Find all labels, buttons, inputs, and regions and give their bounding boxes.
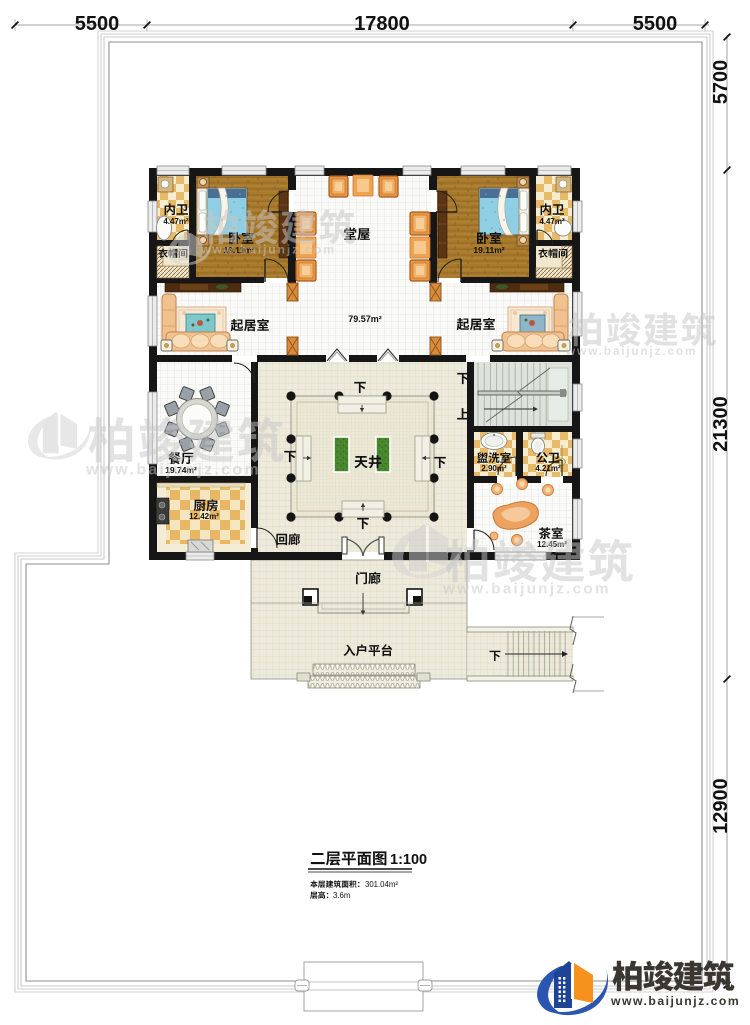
svg-text:19.11m²: 19.11m²	[473, 245, 504, 255]
svg-text:5700: 5700	[710, 60, 732, 105]
svg-text:4.21m²: 4.21m²	[535, 464, 561, 473]
svg-text:www.baijunjz.com: www.baijunjz.com	[565, 344, 697, 358]
svg-text:12.42m²: 12.42m²	[189, 512, 219, 521]
svg-text:5500: 5500	[633, 13, 678, 35]
svg-text:www.baijunjz.com: www.baijunjz.com	[610, 994, 740, 1008]
svg-text:www.baijunjz.com: www.baijunjz.com	[85, 461, 261, 478]
svg-text:17800: 17800	[354, 13, 410, 35]
svg-text:3.6m: 3.6m	[333, 891, 350, 900]
svg-text:4.47m²: 4.47m²	[163, 217, 189, 226]
svg-text:21300: 21300	[710, 396, 732, 452]
svg-text:301.04m²: 301.04m²	[365, 880, 398, 889]
svg-text:2.90m²: 2.90m²	[481, 464, 507, 473]
svg-text:www.baijunjz.com: www.baijunjz.com	[200, 243, 336, 257]
svg-text:www.baijunjz.com: www.baijunjz.com	[442, 581, 611, 598]
svg-text:79.57m²: 79.57m²	[348, 314, 382, 324]
svg-text:5500: 5500	[75, 13, 120, 35]
svg-text:1:100: 1:100	[390, 852, 427, 868]
svg-text:4.47m²: 4.47m²	[539, 217, 565, 226]
svg-text:12900: 12900	[710, 778, 732, 834]
